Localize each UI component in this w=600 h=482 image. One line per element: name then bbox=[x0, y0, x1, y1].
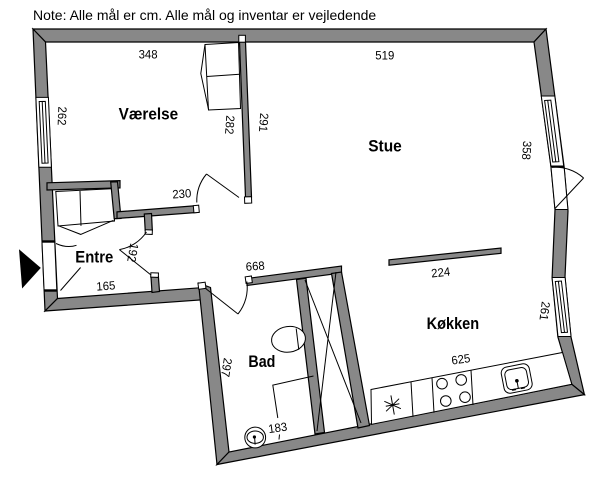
svg-text:Bad: Bad bbox=[248, 353, 275, 371]
svg-text:358: 358 bbox=[519, 140, 534, 160]
svg-text:282: 282 bbox=[222, 115, 237, 135]
svg-text:Entre: Entre bbox=[75, 249, 113, 267]
svg-text:348: 348 bbox=[139, 47, 158, 61]
svg-text:183: 183 bbox=[267, 420, 288, 437]
svg-text:Stue: Stue bbox=[368, 138, 402, 156]
svg-text:297: 297 bbox=[218, 357, 235, 378]
svg-text:291: 291 bbox=[256, 112, 271, 132]
svg-text:Køkken: Køkken bbox=[427, 315, 480, 333]
svg-text:625: 625 bbox=[450, 351, 471, 368]
svg-text:261: 261 bbox=[537, 301, 553, 322]
svg-text:224: 224 bbox=[431, 265, 452, 281]
svg-text:Note: Alle mål er cm. Alle mål: Note: Alle mål er cm. Alle mål og invent… bbox=[33, 7, 376, 23]
svg-text:262: 262 bbox=[55, 106, 70, 126]
svg-text:165: 165 bbox=[96, 278, 116, 293]
svg-text:519: 519 bbox=[375, 48, 394, 62]
svg-text:Værelse: Værelse bbox=[119, 106, 179, 124]
svg-text:230: 230 bbox=[172, 186, 192, 201]
svg-text:668: 668 bbox=[245, 259, 265, 274]
